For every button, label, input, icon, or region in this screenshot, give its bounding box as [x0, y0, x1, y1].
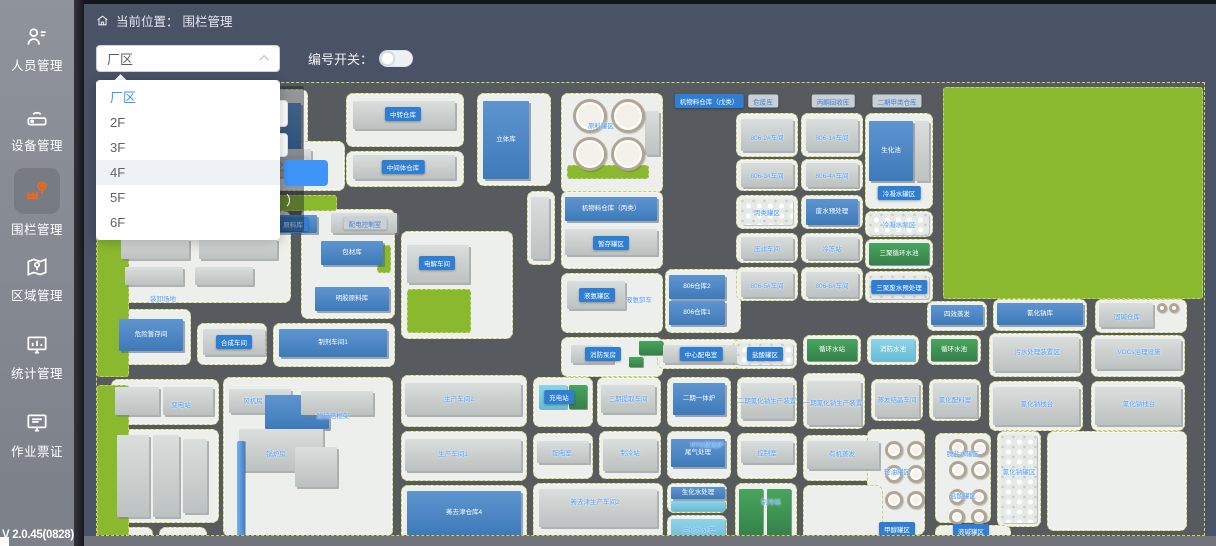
- top-strip: [84, 0, 1216, 4]
- map-tank: [611, 99, 645, 133]
- map-label: 轻油罐区: [884, 466, 910, 476]
- map-building[interactable]: 循环水站: [807, 339, 857, 361]
- map-label: VOCs治理设施: [1117, 346, 1160, 356]
- map-label: 一期氰化钠生产装置: [804, 397, 863, 407]
- map-tank: [885, 441, 903, 459]
- map-label: 冷冻站: [822, 243, 842, 253]
- map-building[interactable]: [295, 447, 337, 487]
- map-lawn: [943, 87, 1203, 299]
- map-label-chip[interactable]: 二期甲类仓库: [873, 95, 922, 108]
- map-label: 806-6#车间: [815, 280, 848, 290]
- map-label-chip[interactable]: 中间体仓库: [382, 160, 425, 174]
- map-building[interactable]: [121, 239, 189, 259]
- map-label: 冷凝水泵区: [883, 219, 916, 229]
- map-building[interactable]: [531, 197, 549, 259]
- floor-option-厂区[interactable]: 厂区: [96, 85, 280, 110]
- toggle-knob: [381, 52, 394, 65]
- map-building[interactable]: [183, 439, 207, 513]
- map-label: 风机房: [243, 395, 263, 405]
- breadcrumb: 当前位置： 围栏管理: [96, 11, 233, 29]
- map-label: 二期氰化钠生产装置: [738, 395, 797, 405]
- map-building[interactable]: [125, 267, 183, 285]
- floor-option-5F[interactable]: 5F: [96, 185, 280, 210]
- map-building[interactable]: 废水预处理: [806, 199, 858, 225]
- map-chimney: [237, 441, 245, 536]
- sidebar-item-label: 作业票证: [0, 441, 74, 460]
- map-building[interactable]: [915, 121, 929, 181]
- map-tank: [573, 137, 607, 171]
- map-label: 配电室: [552, 447, 572, 457]
- floor-option-3F[interactable]: 3F: [96, 135, 280, 160]
- map-label-chip[interactable]: 电解车间: [419, 256, 455, 270]
- map-building[interactable]: 消防水池: [871, 339, 915, 361]
- map-label: 生化水处理: [683, 524, 716, 534]
- map-building[interactable]: 循环水池: [931, 339, 977, 361]
- map-label: 氰化钠罐区: [1003, 466, 1036, 476]
- confirm-button[interactable]: [284, 160, 328, 186]
- map-building[interactable]: [195, 267, 253, 285]
- users-icon: [24, 24, 50, 50]
- map-label-chip[interactable]: 中转仓库: [385, 107, 421, 121]
- sidebar-item-label: 设备管理: [0, 135, 74, 154]
- map-label-chip[interactable]: 甲醇罐区: [879, 522, 915, 536]
- map-parcel[interactable]: [159, 527, 207, 536]
- map-label: 氰化钠栈台: [1123, 398, 1156, 408]
- map-label: 有机蒸发: [829, 448, 855, 458]
- map-building[interactable]: [739, 489, 763, 536]
- map-label-chip[interactable]: 三聚废水预处理: [871, 280, 927, 294]
- map-label: RTO焚烧炉: [691, 439, 724, 449]
- floor-select-value: 厂区: [107, 49, 262, 68]
- map-tank: [971, 509, 987, 525]
- map-label: 锅炉房: [266, 448, 286, 458]
- sidebar-item-label: 人员管理: [0, 55, 74, 74]
- floor-dropdown: 厂区2F3F4F5F6F: [96, 80, 280, 240]
- map-building[interactable]: [153, 435, 179, 517]
- map-label-chip[interactable]: 合成车间: [216, 335, 252, 349]
- map-building[interactable]: 806仓库2: [669, 275, 725, 299]
- map-label: 氰化钠栈台: [1021, 398, 1054, 408]
- map-label: 生产车间2: [444, 393, 474, 403]
- sidebar-item-work-permit[interactable]: 作业票证: [0, 410, 74, 460]
- map-tank: [949, 509, 965, 525]
- map-label: 806-1#车间: [815, 132, 848, 142]
- map-label-chip[interactable]: 配电控制室: [344, 217, 387, 230]
- map-label-chip[interactable]: 暂存罐区: [593, 236, 629, 250]
- map-label: 液氨卸车: [626, 294, 652, 304]
- map-label-chip[interactable]: 丙酮回收库: [812, 95, 855, 108]
- device-icon: [24, 104, 50, 130]
- map-building[interactable]: 四效蒸发: [931, 305, 983, 325]
- map-lawn: [407, 289, 471, 333]
- map-label: 806-5#车间: [750, 280, 783, 290]
- map-building[interactable]: [639, 341, 663, 355]
- map-building[interactable]: 包材库: [321, 241, 383, 265]
- map-tank: [1157, 303, 1167, 313]
- map-tank: [949, 461, 967, 479]
- map-label: 莠去津生产车间2: [570, 496, 619, 506]
- sidebar-item-label: 围栏管理: [0, 219, 74, 238]
- map-label-chip[interactable]: 液碱罐区: [953, 524, 989, 536]
- map-label-chip[interactable]: 盐酸罐区: [747, 347, 783, 361]
- map-label: 脱硫塔框架: [317, 410, 350, 420]
- content-area: 当前位置： 围栏管理 0/20 ） 餐厅立体库包材库明胶原料库机物料仓库（丙类）…: [84, 0, 1216, 546]
- map-label: 装卸场地: [150, 293, 176, 303]
- map-label: 固碱仓库: [1114, 311, 1140, 321]
- sidebar-item-label: 区域管理: [0, 285, 74, 304]
- active-item-tile: [14, 168, 60, 214]
- map-label-chip[interactable]: 冷凝水罐区: [878, 186, 921, 200]
- map-label: 制冷站: [761, 496, 781, 506]
- panel-text-fragment: ）: [286, 190, 299, 209]
- map-label: 806-4#车间: [815, 170, 848, 180]
- map-tank: [907, 441, 925, 459]
- sidebar-divider: [74, 0, 84, 546]
- map-building[interactable]: 立体库: [483, 101, 529, 179]
- map-building[interactable]: 三聚循环水池: [869, 243, 929, 265]
- map-building[interactable]: [629, 357, 643, 367]
- monitor-ticket-icon: [24, 410, 50, 436]
- map-tank: [611, 137, 645, 171]
- map-building[interactable]: [671, 501, 725, 511]
- map-building[interactable]: [199, 239, 277, 259]
- map-label-chip[interactable]: 危废库: [748, 95, 778, 108]
- map-label: 丙类罐区: [754, 207, 780, 217]
- map-label-chip[interactable]: 液氨罐区: [579, 288, 615, 302]
- breadcrumb-prefix: 当前位置：: [116, 11, 179, 30]
- map-tank-area: [1001, 435, 1037, 523]
- map-label: 806-3#车间: [750, 170, 783, 180]
- fence-management-app: 人员管理 设备管理 围栏管理 区域管理: [0, 0, 1216, 546]
- number-toggle-row: 编号开关：: [308, 49, 413, 68]
- map-label: 控制室: [757, 447, 777, 457]
- map-label: 氰化配料室: [939, 394, 972, 404]
- sidebar: 人员管理 设备管理 围栏管理 区域管理: [0, 0, 74, 546]
- map-label-chip[interactable]: 消防泵房: [585, 347, 621, 361]
- number-toggle[interactable]: [379, 50, 413, 67]
- sidebar-item-equipment[interactable]: 设备管理: [0, 104, 74, 154]
- map-parcel[interactable]: [1047, 431, 1187, 531]
- map-tank: [885, 491, 903, 509]
- map-tank: [1169, 303, 1179, 313]
- floor-option-6F[interactable]: 6F: [96, 210, 280, 235]
- map-label: 三期提取车间: [609, 393, 648, 403]
- map-building[interactable]: 机物料仓库（丙类）: [565, 197, 657, 221]
- map-building[interactable]: 明胶原料库: [315, 287, 389, 311]
- map-building[interactable]: [539, 489, 657, 527]
- map-tank: [971, 461, 989, 479]
- map-label: 压滤车间: [754, 243, 780, 253]
- sidebar-item-personnel[interactable]: 人员管理: [0, 24, 74, 74]
- map-label-chip[interactable]: 机物料仓库（戊类）: [675, 94, 744, 108]
- corner-marker: [0, 537, 9, 546]
- map-pin-icon: [24, 254, 50, 280]
- map-building[interactable]: 制剂车间1: [279, 329, 387, 357]
- bottom-bar: [84, 536, 1216, 546]
- home-icon: [96, 14, 109, 27]
- map-label: 原料罐区: [588, 120, 614, 130]
- map-label-chip[interactable]: 中心配电室: [680, 347, 723, 361]
- map-label: 污水处理装置区: [1014, 346, 1060, 356]
- map-building[interactable]: 莠去津仓库4: [407, 491, 521, 535]
- map-label: 制冷站: [620, 447, 640, 457]
- map-label: 806-2#车间: [750, 132, 783, 142]
- floor-option-4F[interactable]: 4F: [96, 160, 280, 185]
- sidebar-item-statistics[interactable]: 统计管理: [0, 332, 74, 382]
- map-label: 生产车间1: [438, 448, 468, 458]
- monitor-stats-icon: [24, 332, 50, 358]
- floor-option-2F[interactable]: 2F: [96, 110, 280, 135]
- map-label: 脱盐水罐区: [947, 448, 980, 458]
- map-building[interactable]: 生化池: [869, 121, 913, 181]
- map-building[interactable]: [115, 387, 159, 415]
- map-label-chip[interactable]: 充电站: [544, 390, 574, 404]
- map-parcel[interactable]: [803, 485, 883, 536]
- app-version: V 2.0.45(0828): [2, 529, 74, 541]
- fence-pin-icon: [24, 178, 50, 204]
- map-label: 蒸发结晶车间: [878, 394, 917, 404]
- sidebar-item-label: 统计管理: [0, 363, 74, 382]
- map-building[interactable]: 生化水处理: [671, 487, 725, 499]
- floor-select[interactable]: 厂区: [96, 45, 280, 72]
- map-label: 变电站: [171, 399, 191, 409]
- toggle-label: 编号开关：: [308, 49, 373, 68]
- map-building[interactable]: 危险暂存间: [119, 319, 183, 351]
- map-building[interactable]: 806仓库1: [669, 301, 725, 325]
- sidebar-item-area[interactable]: 区域管理: [0, 254, 74, 304]
- map-building[interactable]: 二期一体炉: [673, 383, 725, 415]
- map-tank: [907, 491, 925, 509]
- breadcrumb-current: 围栏管理: [183, 11, 233, 30]
- map-label: 盐酸罐区: [950, 490, 976, 500]
- map-building[interactable]: 氰化钠库: [997, 303, 1083, 325]
- map-building[interactable]: [645, 111, 659, 155]
- map-building[interactable]: [117, 435, 149, 517]
- sidebar-item-fence[interactable]: 围栏管理: [0, 168, 74, 238]
